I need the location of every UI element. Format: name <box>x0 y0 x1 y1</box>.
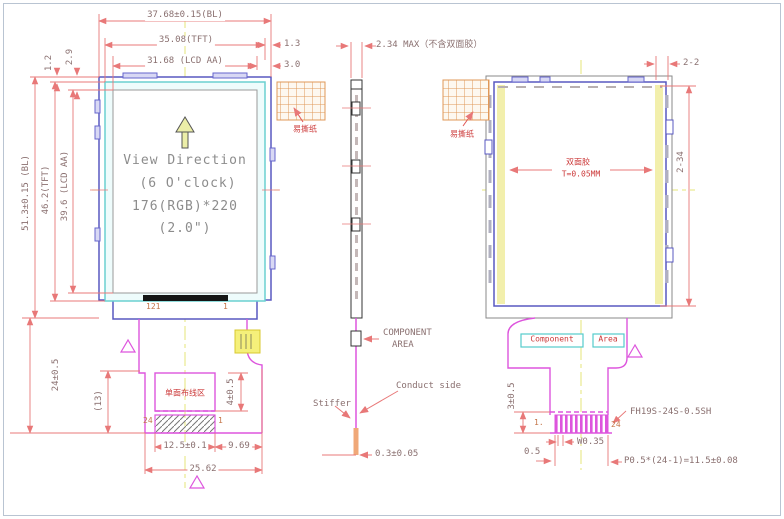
stiffer-label: Stiffer <box>313 400 351 410</box>
connector-part-number: FH19S-24S-0.5SH <box>630 408 711 418</box>
back-tape-strip-right <box>655 85 663 304</box>
front-pin-24: 24 <box>143 417 153 426</box>
side-thickness-dim <box>336 42 376 78</box>
dim-13: (13) <box>95 390 105 412</box>
front-view <box>92 14 325 488</box>
front-top-tab <box>213 73 247 78</box>
front-driver-contact-bar <box>143 295 228 301</box>
wiring-area-label: 单面布线区 <box>165 390 205 399</box>
front-peel-paper-label: 易撕纸 <box>293 126 317 135</box>
conduct-side-label: Conduct side <box>396 382 461 392</box>
view-direction-line1: View Direction <box>123 154 247 168</box>
dim-9-69: 9.69 <box>226 442 252 452</box>
dim-tft-height: 46.2(TFT) <box>42 166 52 215</box>
dim-12-5: 12.5±0.1 <box>161 442 208 452</box>
dim-pitch: P0.5*(24-1)=11.5±0.08 <box>624 457 738 467</box>
back-peel-paper <box>443 80 489 120</box>
warning-triangle-icon <box>190 476 204 488</box>
front-pin-1: 1 <box>218 417 223 426</box>
dim-3-0: 3.0 <box>284 61 300 71</box>
front-side-tab <box>270 256 275 269</box>
front-peel-paper <box>277 82 325 120</box>
tape-thickness-label: T=0.05MM <box>562 171 601 180</box>
dim-aa-width: 31.68 (LCD AA) <box>145 57 225 67</box>
dim-bl-height: 51.3±0.15 (BL) <box>22 155 32 231</box>
dim-tft-width: 35.08(TFT) <box>157 36 215 46</box>
back-pin-24: 24 <box>611 421 621 430</box>
resolution-text: 176(RGB)*220 <box>132 200 238 214</box>
back-top-tab <box>512 77 528 82</box>
component-area-label-line1: COMPONENT <box>383 329 432 339</box>
tape-label: 双面胶 <box>566 159 590 168</box>
side-top-step <box>351 80 362 89</box>
conduct-side-leader-arrow <box>360 391 398 413</box>
back-area-label: Area <box>598 336 617 345</box>
back-side-tab <box>485 140 492 154</box>
back-side-tab <box>666 248 673 262</box>
dim-0-5: 0.5 <box>524 448 540 458</box>
view-direction-line2: (6 O'clock) <box>139 177 236 191</box>
dim-2-9: 2.9 <box>66 49 76 65</box>
drawing-canvas <box>0 0 784 519</box>
dim-aa-height: 39.6 (LCD AA) <box>61 151 71 221</box>
front-pad-number-right: 1 <box>223 303 228 312</box>
dim-1-3: 1.3 <box>284 40 300 50</box>
back-component-label: Component <box>530 336 573 345</box>
back-top-tab <box>540 77 550 82</box>
front-side-tab <box>95 126 100 139</box>
front-side-tab <box>95 228 100 241</box>
dim-2-2: 2-2 <box>683 59 699 69</box>
dim-bl-width: 37.68±0.15(BL) <box>145 11 225 21</box>
back-pin-1: 1. <box>534 419 544 428</box>
dim-1-2: 1.2 <box>45 55 55 71</box>
back-frame-outline <box>494 82 666 306</box>
component-area-label-line2: AREA <box>392 341 414 351</box>
dim-2-34: 2-34 <box>677 151 687 173</box>
back-side-tab <box>666 120 673 134</box>
dim-3: 3±0.5 <box>508 382 518 409</box>
back-connector-comb <box>555 415 608 433</box>
back-top-tab <box>628 77 644 82</box>
side-component-area-box <box>351 331 361 346</box>
engineering-drawing-page: { "front": { "dim_bl_w": "37.68±0.15(BL)… <box>0 0 784 519</box>
front-pad-number-left: 121 <box>146 303 160 312</box>
back-tape-strip-left <box>497 85 505 304</box>
warning-triangle-icon <box>121 340 135 352</box>
warning-triangle-icon <box>628 345 642 357</box>
dim-finger-width: W0.35 <box>577 438 604 448</box>
dim-stiffener: 0.3±0.05 <box>375 450 418 460</box>
dim-thickness: 2.34 MAX（不含双面胶） <box>376 41 482 51</box>
side-view <box>322 42 398 455</box>
back-peel-paper-label: 易撕纸 <box>450 131 474 140</box>
diagonal-size-text: (2.0") <box>159 222 212 236</box>
dim-4: 4±0.5 <box>227 378 237 405</box>
dim-25-62: 25.62 <box>187 465 218 475</box>
front-neck-component-box <box>235 330 260 353</box>
front-connector-hatch <box>155 415 215 433</box>
front-side-tab <box>95 100 100 113</box>
front-top-tab <box>123 73 157 78</box>
dim-tail-height: 24±0.5 <box>52 359 62 392</box>
front-side-tab <box>270 148 275 161</box>
